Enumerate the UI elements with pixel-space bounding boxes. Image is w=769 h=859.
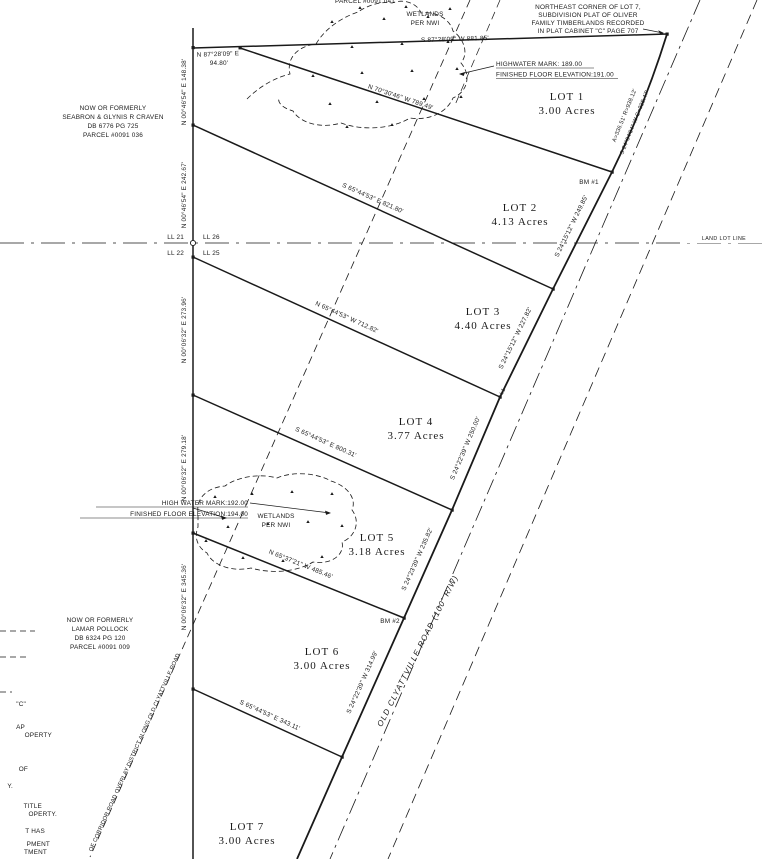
left-margin-dashes <box>0 631 35 692</box>
land-lot-corner-marker <box>190 240 195 245</box>
edge-fragment-4: OF <box>19 766 28 773</box>
road-curve-tag: L1 <box>499 387 507 396</box>
adjoiner-craven-line1: NOW OR FORMERLY <box>80 105 147 112</box>
edge-fragment-8: T HAS <box>25 828 45 835</box>
lot4-lot5-line <box>193 395 452 510</box>
adjoiner-craven-line4: PARCEL #0091 036 <box>83 132 143 139</box>
northeast-note-line3: FAMILY TIMBERLANDS RECORDED <box>532 20 645 27</box>
lot4-name: LOT 4 <box>399 416 433 428</box>
edge-fragment-10: TMENT <box>24 849 47 856</box>
northeast-note-line1: NORTHEAST CORNER OF LOT 7, <box>535 4 641 11</box>
benchmark-2-label: BM #2 <box>380 618 400 625</box>
road-name-label: OLD CLYATTVILLE ROAD (100' R/W) <box>375 574 460 729</box>
adjoiner-craven-line3: DB 6776 PG 725 <box>87 123 138 130</box>
survey-plat-sheet: PARCEL #0091 041 NORTHEAST CORNER OF LOT… <box>0 0 769 859</box>
land-lot-26: LL 26 <box>203 234 220 241</box>
lot4-area: 3.77 Acres <box>387 430 444 442</box>
road-west-right-of-way-line <box>297 34 667 859</box>
northeast-note-line2: SUBDIVISION PLAT OF OLIVER <box>538 12 638 19</box>
highwater-upper-line2: FINISHED FLOOR ELEVATION:191.00 <box>496 72 614 79</box>
plat-drawing: PARCEL #0091 041 NORTHEAST CORNER OF LOT… <box>0 0 769 859</box>
west-line-bearing-3: N 00°06'32" E 273.96' <box>180 297 188 364</box>
west-line-bearing-5: N 00°06'32" E 345.36' <box>180 564 188 631</box>
parcel-cut-label: PARCEL #0091 041 <box>335 0 395 5</box>
wetland-marsh-symbols-north <box>311 5 462 128</box>
wetlands-north-label-1: WETLANDS <box>406 11 443 18</box>
land-lot-25: LL 25 <box>203 250 220 257</box>
north-line-bearing: S 87°28'09" W 881.85' <box>421 34 489 44</box>
adjoiner-craven-line2: SEABRON & GLYNIS R CRAVEN <box>62 114 164 121</box>
benchmark-1-label: BM #1 <box>579 179 599 186</box>
lot5-area: 3.18 Acres <box>348 546 405 558</box>
corner-markers <box>192 33 669 759</box>
road-centerline <box>330 0 700 859</box>
highwater-lower-line2: FINISHED FLOOR ELEVATION:194.00 <box>130 511 248 518</box>
edge-fragment-7: OPERTY. <box>28 811 57 818</box>
lot6-lot7-line <box>193 689 342 757</box>
wetlands-north-label-2: PER NWI <box>411 20 440 27</box>
lot6-name: LOT 6 <box>305 646 339 658</box>
lot1-area: 3.00 Acres <box>538 105 595 117</box>
lot2-lot3-line <box>193 125 553 289</box>
west-line-bearing-2: N 00°46'54" E 242.67' <box>180 162 188 229</box>
lot3-name: LOT 3 <box>466 306 500 318</box>
lot5-name: LOT 5 <box>360 532 394 544</box>
adjoiner-pollock-line2: LAMAR POLLOCK <box>72 626 129 633</box>
wetlands-south-label-2: PER NWI <box>262 522 291 529</box>
corridor-overlay-label: OF CORRIDOR ROAD OVERLAY DISTRICT ALONG … <box>88 653 181 853</box>
corridor-overlay-line-2 <box>455 0 500 105</box>
edge-fragment-9: PMENT <box>27 841 50 848</box>
edge-fragment-3: OPERTY <box>25 732 53 739</box>
highwater-lower-line1: HIGH WATER MARK:192.00 <box>162 500 248 507</box>
west-line-bearing-4: N 00°06'32" E 279.18' <box>180 435 188 502</box>
wetlands-south-label-1: WETLANDS <box>257 513 294 520</box>
lot7-name: LOT 7 <box>230 821 264 833</box>
lot6-area: 3.00 Acres <box>293 660 350 672</box>
edge-fragment-6: TITLE <box>24 803 42 810</box>
edge-fragment-2: AP <box>16 724 25 731</box>
lot3-area: 4.40 Acres <box>454 320 511 332</box>
lot1-2-bearing: N 70°30'46" W 789.49' <box>367 82 434 111</box>
edge-fragment-1: "C" <box>16 701 26 708</box>
adjoiner-pollock-line4: PARCEL #0091 009 <box>70 644 130 651</box>
adjoiner-pollock-line1: NOW OR FORMERLY <box>67 617 134 624</box>
road-bearing-3: S 24°22'39" W 250.00' <box>448 415 482 481</box>
northeast-note-line4: IN PLAT CABINET "C" PAGE 707 <box>538 28 639 35</box>
lot2-area: 4.13 Acres <box>491 216 548 228</box>
north-tie-distance: 94.80' <box>210 60 228 67</box>
edge-fragment-5: Y. <box>7 783 13 790</box>
north-tie-bearing: N 87°28'09" E <box>197 49 240 58</box>
lot2-name: LOT 2 <box>503 202 537 214</box>
lot7-area: 3.00 Acres <box>218 835 275 847</box>
land-lot-22: LL 22 <box>167 250 184 257</box>
lot1-name: LOT 1 <box>550 91 584 103</box>
land-lot-line-label: LAND LOT LINE <box>702 236 746 242</box>
highwater-upper-line1: HIGHWATER MARK: 189.00 <box>496 61 582 68</box>
west-line-bearing-1: N 00°46'54" E 148.38' <box>180 59 188 126</box>
lot2-3-bearing: S 65°44'53" E 821.80' <box>341 181 405 215</box>
lot6-7-bearing: S 65°44'53" E 343.11' <box>238 698 301 733</box>
land-lot-21: LL 21 <box>167 234 184 241</box>
adjoiner-pollock-line3: DB 6324 PG 120 <box>74 635 125 642</box>
